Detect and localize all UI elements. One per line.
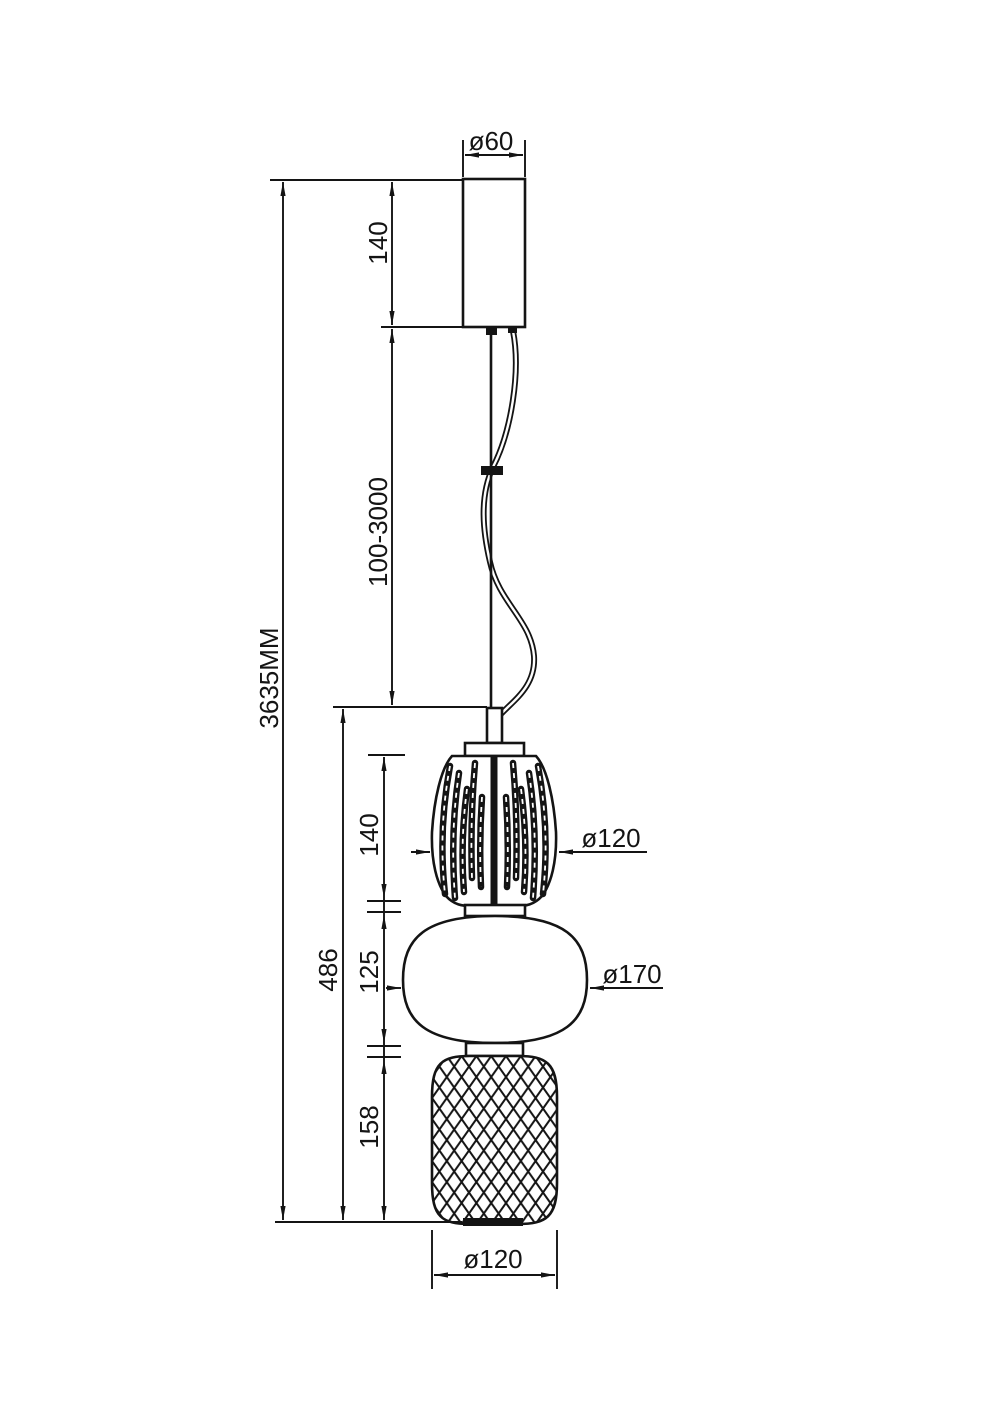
rib-slat: [471, 763, 475, 878]
bottom-shade-height-label: 158: [354, 1105, 384, 1148]
joint-ring-lower: [466, 1043, 523, 1056]
dim-canopy-height: 140: [363, 182, 462, 327]
joint-ring-upper: [465, 905, 525, 916]
middle-shade-oval: [403, 916, 587, 1043]
overall-height-label: 3635MM: [254, 627, 284, 728]
dim-bottom-shade-diameter: ø120: [432, 1230, 557, 1289]
suspension-length-label: 100-3000: [363, 477, 393, 587]
stem: [487, 708, 502, 743]
top-shade-height-label: 140: [354, 813, 384, 856]
canopy-diameter-label: ø60: [469, 126, 514, 156]
bottom-shade-crosshatch: [432, 1056, 557, 1226]
dim-middle-shade-height: 125: [354, 915, 384, 1043]
rod-fitting: [486, 327, 497, 335]
cord-fitting: [508, 327, 517, 333]
top-shade-ribbed: [432, 756, 556, 906]
dim-overall-height: 3635MM: [254, 180, 463, 1222]
cord-clamp: [481, 466, 503, 475]
rib-slat: [513, 763, 517, 878]
pendant-lamp-drawing: ø60 3635MM 140 100-3000 486 140 125: [0, 0, 992, 1403]
bottom-shade-outline: [432, 1056, 557, 1224]
canopy-height-label: 140: [363, 221, 393, 264]
joint-break-marks-upper: [367, 898, 401, 915]
bottom-shade-diameter-label: ø120: [463, 1244, 522, 1274]
fixture-height-label: 486: [313, 948, 343, 991]
lamp-stem: [465, 708, 524, 756]
dim-top-shade-height: 140: [354, 755, 405, 898]
joint-break-marks-lower: [367, 1043, 401, 1060]
middle-shade-diameter-label: ø170: [602, 959, 661, 989]
bottom-cap: [463, 1218, 523, 1226]
canopy-body: [463, 179, 525, 327]
dim-fixture-height: 486: [313, 709, 343, 1220]
middle-shade-height-label: 125: [354, 950, 384, 993]
dim-suspension-length: 100-3000: [333, 329, 487, 707]
dim-bottom-shade-height: 158: [354, 1060, 384, 1220]
collar: [465, 743, 524, 756]
dim-canopy-diameter: ø60: [463, 126, 525, 177]
top-shade-diameter-label: ø120: [581, 823, 640, 853]
technical-drawing-page: ø60 3635MM 140 100-3000 486 140 125: [0, 0, 992, 1403]
canopy: [463, 179, 525, 335]
